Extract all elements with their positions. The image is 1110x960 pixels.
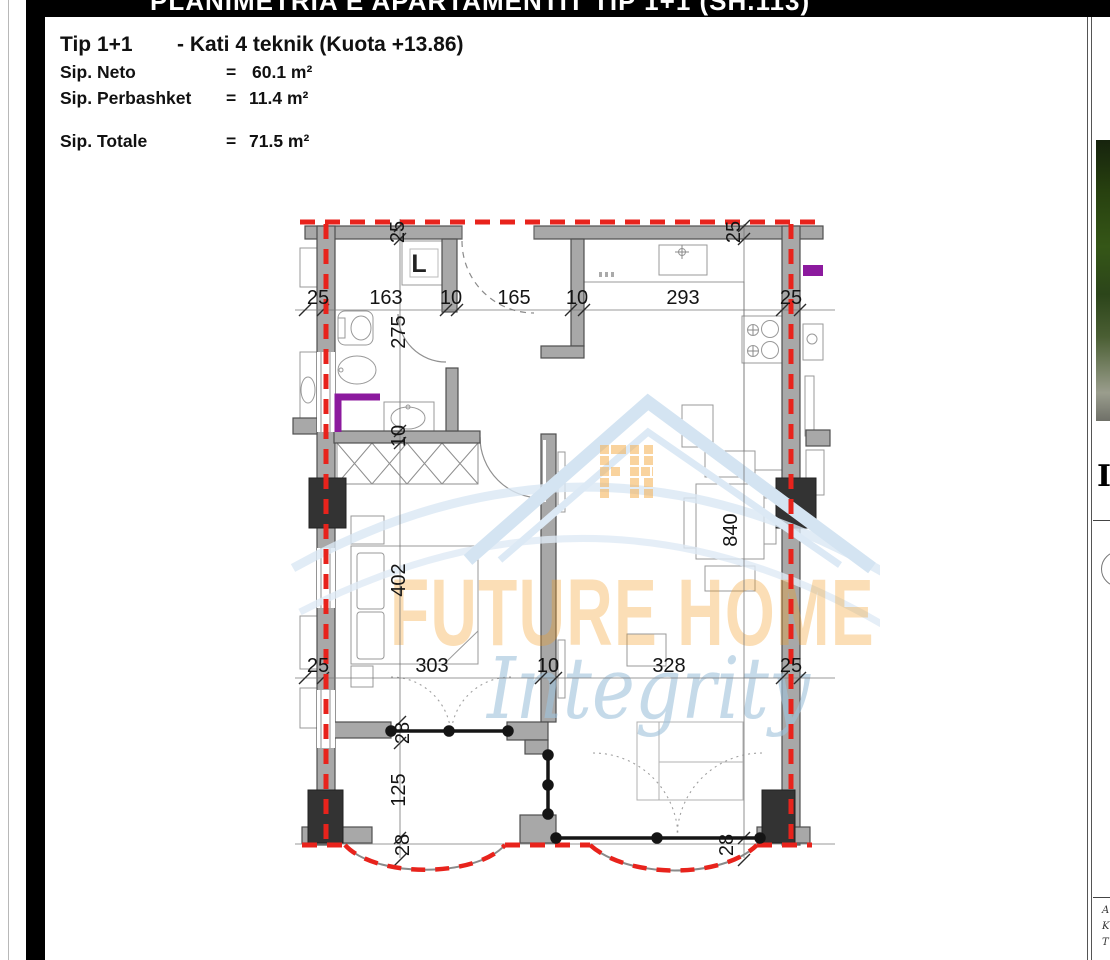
dim-label: 10 xyxy=(537,655,559,677)
dim-label: 10 xyxy=(566,287,588,309)
entry-opening xyxy=(462,226,534,239)
side-panel-text-fragment: I xyxy=(1097,462,1110,492)
dim-label: 25 xyxy=(780,655,802,677)
property-photo-sliver xyxy=(1096,140,1110,421)
area-perbashket-value: 11.4 m² xyxy=(249,88,308,109)
side-panel-label-fragment: T xyxy=(1102,938,1109,948)
dim-label: 25 xyxy=(723,221,745,243)
area-perbashket-label: Sip. Perbashket xyxy=(60,88,191,109)
chair xyxy=(684,498,696,548)
watermark-text-sub: Integrity xyxy=(485,640,811,739)
area-neto-eq: = xyxy=(226,62,236,83)
panel-divider-line xyxy=(1091,17,1092,960)
header-bar: PLANIMETRIA E APARTAMENTIT TIP 1+1 (SH.1… xyxy=(26,0,1110,17)
bidet xyxy=(338,356,376,384)
dim-label: 840 xyxy=(720,513,742,546)
closet-hatch xyxy=(337,443,478,484)
stove xyxy=(742,316,784,363)
area-totale-label: Sip. Totale xyxy=(60,131,147,152)
side-panel-label-fragment: A xyxy=(1102,906,1109,916)
area-neto-label: Sip. Neto xyxy=(60,62,136,83)
dim-label: 163 xyxy=(369,287,402,309)
header-title: PLANIMETRIA E APARTAMENTIT TIP 1+1 (SH.1… xyxy=(150,0,810,17)
dim-label: 402 xyxy=(388,563,410,596)
side-panel-divider xyxy=(1093,520,1110,521)
nightstand xyxy=(351,666,373,687)
dim-label: 10 xyxy=(440,287,462,309)
dim-label: 25 xyxy=(780,287,802,309)
neighbour-purple-fixture xyxy=(803,265,823,276)
room-label-laundry: L xyxy=(411,250,426,278)
pillow xyxy=(357,612,384,659)
floor-plan: FUTURE HOME Integrity xyxy=(280,205,880,895)
shower-fixture xyxy=(338,397,380,432)
dim-label: 328 xyxy=(652,655,685,677)
area-totale-eq: = xyxy=(226,131,236,152)
area-totale-value: 71.5 m² xyxy=(249,131,309,152)
dim-label: 28 xyxy=(716,834,738,856)
apartment-type-label: Tip 1+1 xyxy=(60,33,133,57)
side-panel-divider xyxy=(1093,897,1110,898)
kitchen-island-sink xyxy=(659,245,707,275)
dim-label: 125 xyxy=(388,773,410,806)
page-edge-line xyxy=(8,0,9,960)
dim-label: 10 xyxy=(388,425,410,447)
apartment-subtitle: - Kati 4 teknik (Kuota +13.86) xyxy=(177,33,464,57)
area-perbashket-eq: = xyxy=(226,88,236,109)
left-border-bar xyxy=(26,0,45,960)
dim-label: 28 xyxy=(392,722,414,744)
page: PLANIMETRIA E APARTAMENTIT TIP 1+1 (SH.1… xyxy=(0,0,1110,960)
dim-label: 303 xyxy=(415,655,448,677)
dim-label: 165 xyxy=(497,287,530,309)
dim-label: 25 xyxy=(387,221,409,243)
panel-divider-line xyxy=(1087,17,1088,960)
side-panel-label-fragment: K xyxy=(1102,922,1109,932)
dim-label: 25 xyxy=(307,655,329,677)
dim-label: 28 xyxy=(392,834,414,856)
dim-label: 293 xyxy=(666,287,699,309)
dim-label: 25 xyxy=(307,287,329,309)
dim-label: 275 xyxy=(388,315,410,348)
area-neto-value: 60.1 m² xyxy=(252,62,312,83)
compass-circle xyxy=(1101,551,1110,587)
